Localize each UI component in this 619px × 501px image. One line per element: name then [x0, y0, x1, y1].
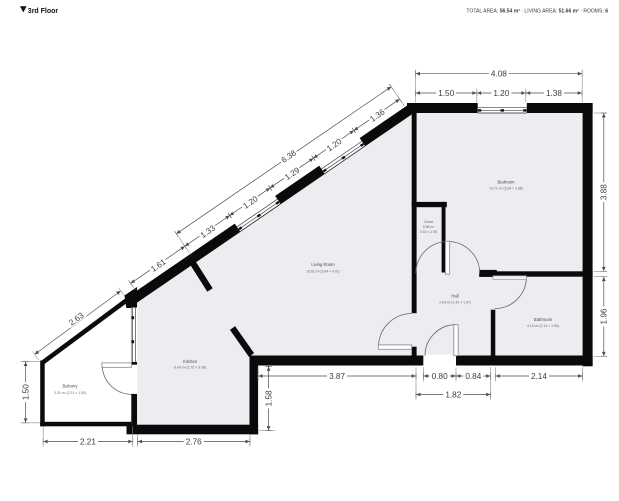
svg-text:3.31 m² (2.21 × 1.50): 3.31 m² (2.21 × 1.50)	[54, 391, 86, 395]
svg-text:3rd Floor: 3rd Floor	[28, 8, 59, 15]
svg-text:Bathroom: Bathroom	[534, 317, 553, 322]
svg-text:1.96: 1.96	[600, 308, 609, 324]
svg-text:TOTAL AREA: 56.54 m² · LIVING: TOTAL AREA: 56.54 m² · LIVING AREA: 51.6…	[466, 8, 608, 14]
svg-text:14.71 m² (3.84 × 3.88): 14.71 m² (3.84 × 3.88)	[489, 187, 523, 191]
svg-text:0.63 × 1.98: 0.63 × 1.98	[420, 230, 437, 234]
svg-text:Balcony: Balcony	[63, 384, 79, 389]
svg-text:1.58: 1.58	[265, 390, 274, 406]
svg-text:Closet: Closet	[424, 220, 434, 224]
svg-text:0.84: 0.84	[465, 372, 481, 381]
svg-text:Living Room: Living Room	[311, 262, 335, 267]
svg-text:1.50: 1.50	[21, 384, 30, 400]
svg-text:1.20: 1.20	[493, 89, 509, 98]
svg-text:0.80: 0.80	[432, 372, 448, 381]
svg-text:2.84 m² (1.42 × 1.97): 2.84 m² (1.42 × 1.97)	[439, 301, 471, 305]
svg-text:8.49 m² (2.76 × 3.08): 8.49 m² (2.76 × 3.08)	[174, 366, 206, 370]
svg-text:0.58 m²: 0.58 m²	[423, 225, 435, 229]
svg-text:4.08: 4.08	[491, 70, 507, 79]
svg-text:4.15 m² (2.14 × 1.96): 4.15 m² (2.14 × 1.96)	[527, 324, 559, 328]
svg-text:1.50: 1.50	[438, 89, 454, 98]
svg-text:1.82: 1.82	[445, 390, 461, 399]
svg-text:Bedroom: Bedroom	[498, 180, 516, 185]
svg-text:2.21: 2.21	[80, 437, 96, 446]
svg-text:1.38: 1.38	[546, 89, 562, 98]
svg-text:Kitchen: Kitchen	[183, 359, 198, 364]
svg-text:19.82 m² (5.84 × 4.01): 19.82 m² (5.84 × 4.01)	[306, 270, 340, 274]
svg-text:3.88: 3.88	[600, 184, 609, 200]
svg-text:Hall: Hall	[451, 294, 458, 299]
svg-text:2.76: 2.76	[186, 437, 202, 446]
svg-text:2.14: 2.14	[531, 372, 547, 381]
svg-text:3.87: 3.87	[329, 372, 345, 381]
